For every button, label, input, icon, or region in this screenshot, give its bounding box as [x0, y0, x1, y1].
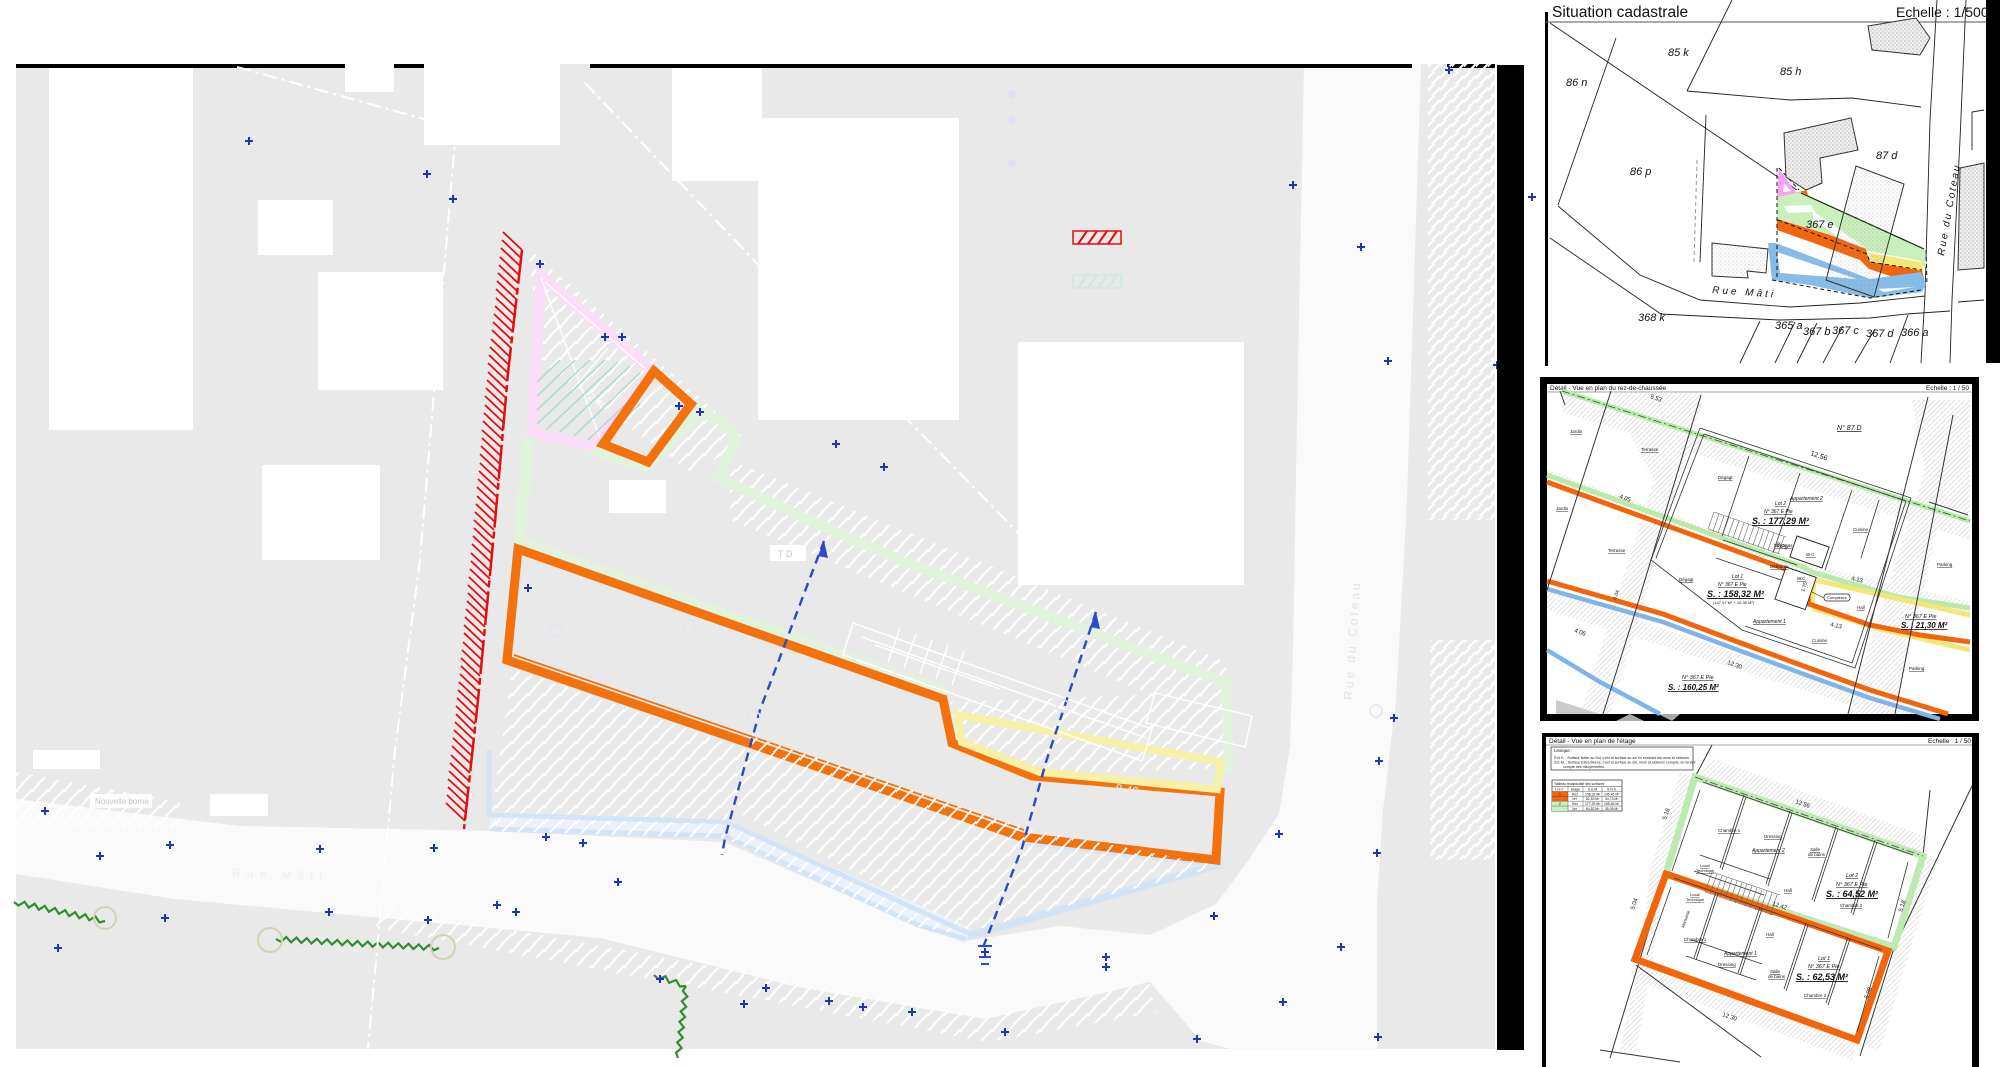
- svg-text:367 b: 367 b: [1803, 326, 1831, 338]
- svg-text:S. : 64,52 M²: S. : 64,52 M²: [1826, 889, 1879, 899]
- svg-text:N° 367 E Pie: N° 367 E Pie: [1808, 964, 1840, 970]
- svg-text:S.E.M. : Surface Extra Muros,: S.E.M. : Surface Extra Muros, c'est la s…: [1554, 761, 1696, 765]
- svg-text:87 d: 87 d: [1876, 150, 1898, 162]
- svg-text:1er: 1er: [1572, 797, 1578, 801]
- svg-text:Lot 1: Lot 1: [1732, 574, 1743, 580]
- svg-text:Débarras: Débarras: [1770, 564, 1789, 569]
- svg-text:Echelle : 1/500: Echelle : 1/500: [1896, 4, 1989, 20]
- svg-text:1er: 1er: [1572, 807, 1578, 811]
- svg-text:367 c: 367 c: [1832, 325, 1859, 337]
- svg-text:Appartement 1: Appartement 1: [1723, 951, 1757, 957]
- svg-text:S. : 62,53 M²: S. : 62,53 M²: [1796, 972, 1849, 982]
- svg-text:Terrasse: Terrasse: [1608, 548, 1626, 553]
- svg-text:Terrasse: Terrasse: [1641, 447, 1659, 452]
- svg-text:N° 367 E Pie: N° 367 E Pie: [1682, 675, 1714, 681]
- svg-text:Hall: Hall: [1857, 605, 1865, 610]
- svg-text:de bains: de bains: [1808, 852, 1826, 857]
- svg-text:Chambre 1: Chambre 1: [1718, 828, 1741, 833]
- svg-text:Appartement 2: Appartement 2: [1751, 848, 1785, 854]
- svg-text:34,73 M²: 34,73 M²: [1605, 797, 1619, 801]
- svg-text:2: 2: [1559, 802, 1561, 806]
- svg-text:de bains: de bains: [1768, 974, 1786, 979]
- svg-text:Lot 2: Lot 2: [1846, 873, 1858, 879]
- svg-text:85 k: 85 k: [1668, 47, 1689, 59]
- svg-text:Echelle : 1 / 50: Echelle : 1 / 50: [1928, 738, 1971, 745]
- svg-text:N° 367 E Pie: N° 367 E Pie: [1764, 509, 1793, 515]
- svg-text:N° 367 E Pie: N° 367 E Pie: [1905, 614, 1937, 620]
- svg-text:Dégagt: Dégagt: [1718, 475, 1733, 480]
- svg-text:Technique: Technique: [1696, 868, 1715, 873]
- svg-text:Appartement 1: Appartement 1: [1752, 619, 1786, 625]
- svg-text:145,46 M²: 145,46 M²: [1604, 792, 1620, 796]
- svg-text:Appartement 2: Appartement 2: [1789, 496, 1823, 502]
- svg-text:W.C.: W.C.: [1806, 552, 1816, 557]
- svg-text:Situation cadastrale: Situation cadastrale: [1552, 4, 1688, 21]
- svg-text:Etage: Etage: [1571, 788, 1580, 792]
- svg-text:Technique: Technique: [1686, 897, 1705, 902]
- svg-text:368 k: 368 k: [1638, 312, 1665, 324]
- svg-text:177,29 M²: 177,29 M²: [1585, 802, 1601, 806]
- svg-text:85 h: 85 h: [1780, 66, 1801, 78]
- svg-text:64,52 M²: 64,52 M²: [1586, 807, 1600, 811]
- svg-text:155,46 M²: 155,46 M²: [1604, 802, 1620, 806]
- svg-text:N° 367 E Pie: N° 367 E Pie: [1836, 882, 1868, 888]
- svg-text:W.C.: W.C.: [1797, 576, 1807, 581]
- svg-text:Compteurs: Compteurs: [1827, 595, 1847, 600]
- svg-text:365 a: 365 a: [1775, 320, 1803, 332]
- svg-text:158,32 M²: 158,32 M²: [1585, 792, 1601, 796]
- svg-text:366 a: 366 a: [1901, 327, 1929, 339]
- svg-text:N° 87 D: N° 87 D: [1837, 424, 1862, 432]
- svg-text:35,09 M²: 35,09 M²: [1605, 807, 1619, 811]
- svg-text:Chambre 2: Chambre 2: [1804, 993, 1827, 998]
- svg-text:T D: T D: [778, 549, 793, 559]
- svg-text:1: 1: [1559, 792, 1561, 796]
- svg-text:N° 367 E Pie: N° 367 E Pie: [1718, 582, 1747, 588]
- svg-text:S. : 177,29 M²: S. : 177,29 M²: [1752, 516, 1810, 526]
- svg-text:Jardin: Jardin: [1556, 506, 1569, 511]
- svg-text:Débarras: Débarras: [1774, 543, 1793, 548]
- svg-text:(147,97 M² + 10,35 M²): (147,97 M² + 10,35 M²): [1713, 600, 1755, 605]
- svg-text:62,53 M²: 62,53 M²: [1586, 797, 1600, 801]
- svg-text:Lexique :: Lexique :: [1554, 748, 1572, 753]
- svg-text:Rez: Rez: [1572, 792, 1578, 796]
- svg-text:Cuisine: Cuisine: [1812, 638, 1828, 643]
- svg-text:Jardin: Jardin: [1570, 429, 1583, 434]
- svg-text:Parking: Parking: [1909, 666, 1925, 671]
- svg-text:S.N.S.: S.N.S.: [1607, 788, 1617, 792]
- svg-text:Hall: Hall: [1784, 888, 1792, 893]
- svg-text:S. : 160,25 M²: S. : 160,25 M²: [1668, 683, 1719, 692]
- svg-text:Echelle : 1 / 50: Echelle : 1 / 50: [1926, 385, 1969, 392]
- svg-text:Lot 1: Lot 1: [1818, 956, 1830, 962]
- svg-text:Dégagt: Dégagt: [1679, 577, 1694, 582]
- svg-text:S.E.M.: S.E.M.: [1588, 788, 1598, 792]
- svg-text:Tableau récapitulatif des surf: Tableau récapitulatif des surfaces: [1554, 782, 1605, 786]
- svg-text:S.N.S. : Surface Nette au Sol,: S.N.S. : Surface Nette au Sol, c'est la …: [1554, 756, 1689, 760]
- svg-text:86 n: 86 n: [1566, 77, 1587, 89]
- svg-text:Nouvelle borne: Nouvelle borne: [95, 797, 149, 806]
- svg-text:Dressing: Dressing: [1764, 834, 1782, 839]
- svg-text:Chambre 1: Chambre 1: [1684, 937, 1707, 942]
- svg-text:Dressing: Dressing: [1718, 962, 1736, 967]
- svg-text:compte des mitoyennetés.: compte des mitoyennetés.: [1563, 765, 1605, 769]
- svg-text:367 d: 367 d: [1866, 328, 1894, 340]
- svg-text:86 p: 86 p: [1630, 166, 1651, 178]
- svg-text:S. : 158,32 M²: S. : 158,32 M²: [1707, 589, 1765, 599]
- svg-text:Cuisine: Cuisine: [1853, 527, 1869, 532]
- svg-text:Parking: Parking: [1937, 562, 1953, 567]
- svg-text:Chambre 2: Chambre 2: [1840, 903, 1863, 908]
- svg-text:Lot 2: Lot 2: [1775, 501, 1786, 507]
- svg-text:Hall: Hall: [1766, 932, 1774, 937]
- svg-text:Détail - Vue en plan de l'étag: Détail - Vue en plan de l'étage: [1549, 738, 1636, 745]
- svg-text:Lot n°: Lot n°: [1555, 788, 1565, 792]
- svg-text:Rez: Rez: [1572, 802, 1578, 806]
- svg-text:367 e: 367 e: [1806, 219, 1834, 231]
- svg-text:S. : 21,30 M²: S. : 21,30 M²: [1901, 621, 1948, 630]
